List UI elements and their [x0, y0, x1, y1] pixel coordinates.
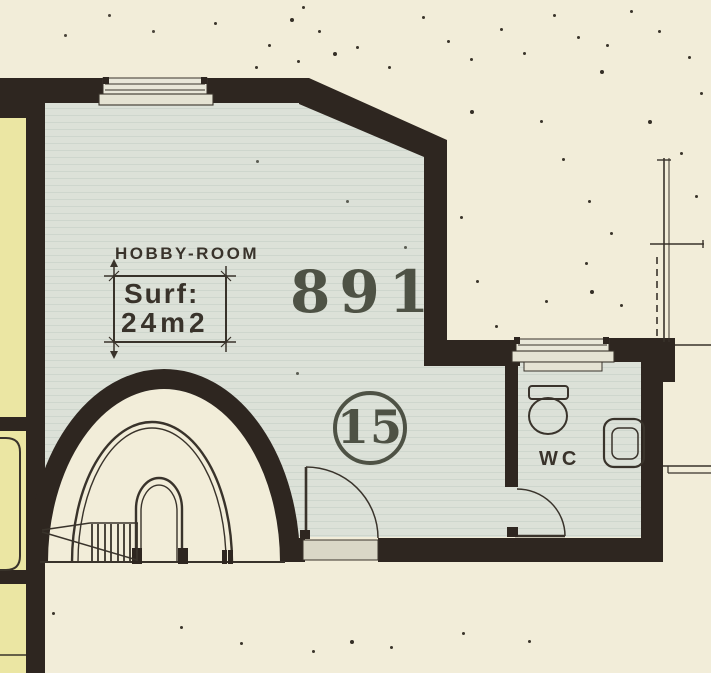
north-wall-mid	[205, 78, 307, 103]
room-name-label: HOBBY-ROOM	[115, 245, 259, 262]
wc-northeast-bump	[663, 338, 675, 382]
wc-window	[512, 337, 614, 371]
adjacent-wall-stub-upper	[0, 417, 26, 431]
adjacent-room-floor	[0, 115, 26, 673]
unit-number: 15	[337, 400, 403, 454]
wc-north-wall	[424, 340, 520, 366]
adjacent-wall-stub-lower	[0, 570, 26, 584]
surface-title-label: Surf:	[124, 280, 199, 308]
west-wall	[26, 78, 45, 673]
unit-number-badge: 15	[333, 391, 407, 465]
plot-number: 891	[290, 268, 438, 316]
north-window	[99, 77, 213, 105]
plan-drawing	[0, 0, 711, 673]
floor-plan: HOBBY-ROOM Surf: 24m2 891 15 WC	[0, 0, 711, 673]
wc-label: WC	[539, 449, 580, 469]
paper-speckles	[0, 0, 4, 4]
east-wall-hobby	[424, 140, 447, 366]
wc-west-wall	[505, 366, 518, 487]
wc-northeast-wall	[607, 338, 663, 362]
surface-value-label: 24m2	[121, 309, 209, 337]
south-wall	[378, 538, 663, 562]
